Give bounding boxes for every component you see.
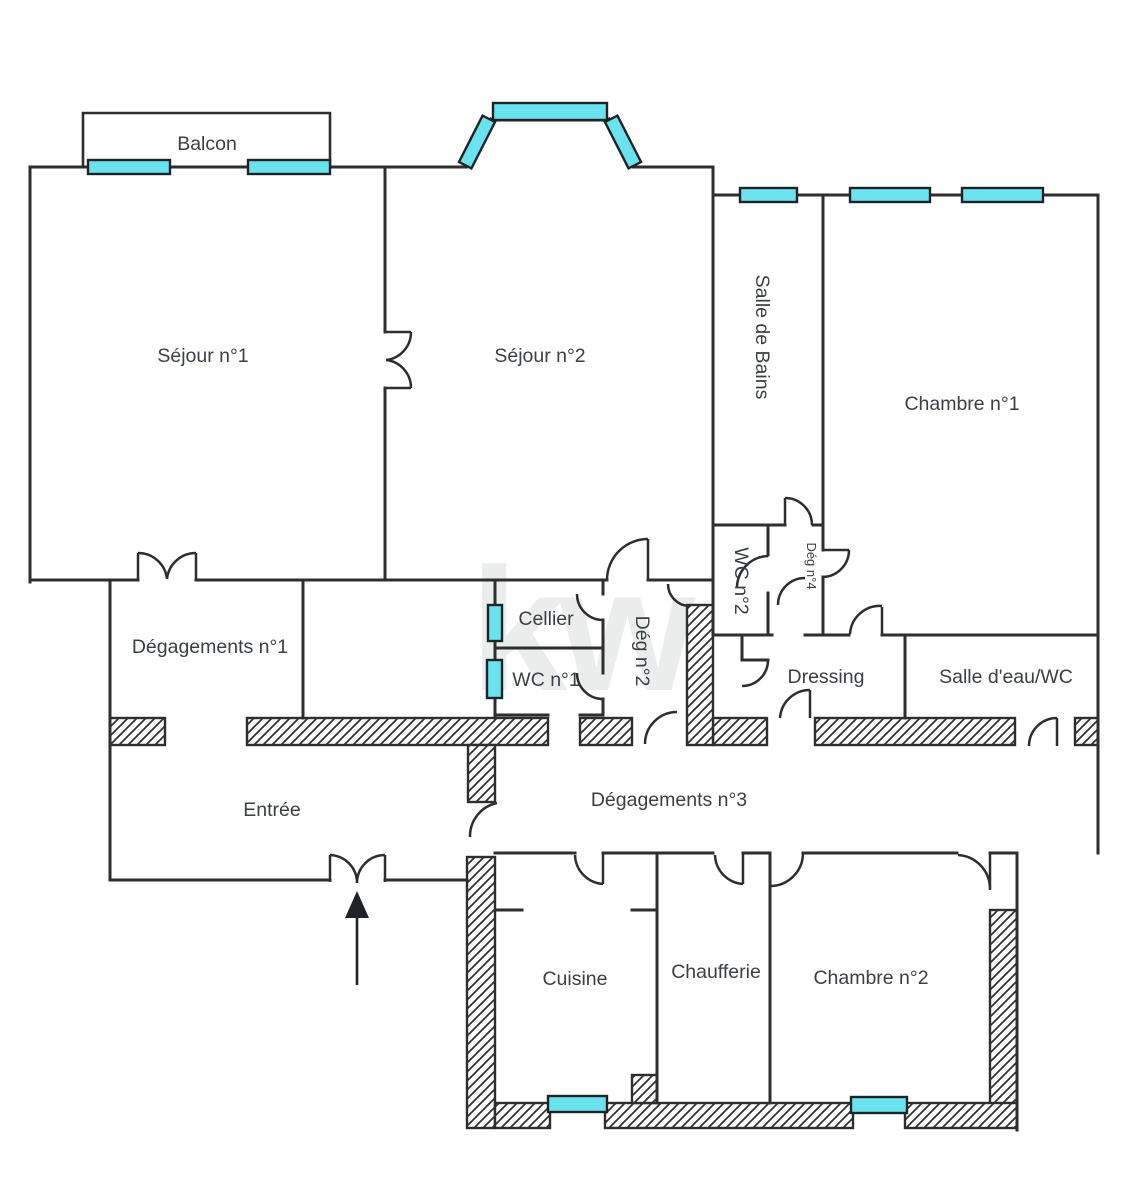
wall-segment	[468, 745, 495, 802]
room-label-sejour-1: Séjour n°1	[157, 345, 248, 367]
wall-segment	[605, 1103, 853, 1128]
room-label-wc-1: WC n°1	[512, 669, 579, 691]
window	[740, 188, 797, 202]
room-label-salle-eau-wc: Salle d'eau/WC	[939, 666, 1073, 688]
wall-segment	[815, 718, 1015, 745]
wall-segment	[110, 718, 165, 745]
window	[850, 188, 930, 202]
room-label-balcon: Balcon	[177, 133, 237, 155]
wall-segment	[990, 910, 1017, 1105]
wall-segment	[247, 718, 548, 745]
window	[248, 160, 330, 174]
window	[88, 160, 170, 174]
room-label-degagements-1: Dégagements n°1	[132, 636, 288, 658]
room-label-dressing: Dressing	[788, 666, 865, 688]
room-label-degagements-3: Dégagements n°3	[591, 789, 747, 811]
wall-segment	[467, 857, 495, 1128]
window	[962, 188, 1043, 202]
room-label-chambre-2: Chambre n°2	[813, 967, 928, 989]
wall-segment	[632, 1075, 657, 1103]
room-label-wc-2: WC n°2	[730, 547, 752, 614]
floor-plan-page: kw	[0, 0, 1127, 1200]
window	[493, 103, 607, 120]
wall-segment	[1075, 718, 1098, 745]
wall-segment	[687, 605, 713, 745]
room-label-salle-de-bains: Salle de Bains	[751, 275, 773, 400]
window	[851, 1097, 907, 1113]
room-label-cellier: Cellier	[518, 608, 574, 630]
room-label-deg-2: Dég n°2	[631, 616, 653, 687]
room-label-cuisine: Cuisine	[542, 968, 607, 990]
wall-segment	[580, 718, 632, 745]
window	[548, 1096, 607, 1112]
wall-segment	[905, 1103, 1017, 1128]
room-label-sejour-2: Séjour n°2	[494, 345, 585, 367]
room-label-chaufferie: Chaufferie	[671, 961, 761, 983]
window	[487, 660, 502, 698]
room-label-chambre-1: Chambre n°1	[904, 393, 1019, 415]
room-label-deg-4: Dég n°4	[804, 542, 819, 589]
watermark-text: kw	[470, 533, 696, 728]
floor-plan: kw	[0, 0, 1127, 1200]
room-label-entree: Entrée	[243, 799, 300, 821]
window	[488, 605, 502, 641]
wall-segment	[713, 718, 767, 745]
wall-segment	[495, 1103, 550, 1128]
